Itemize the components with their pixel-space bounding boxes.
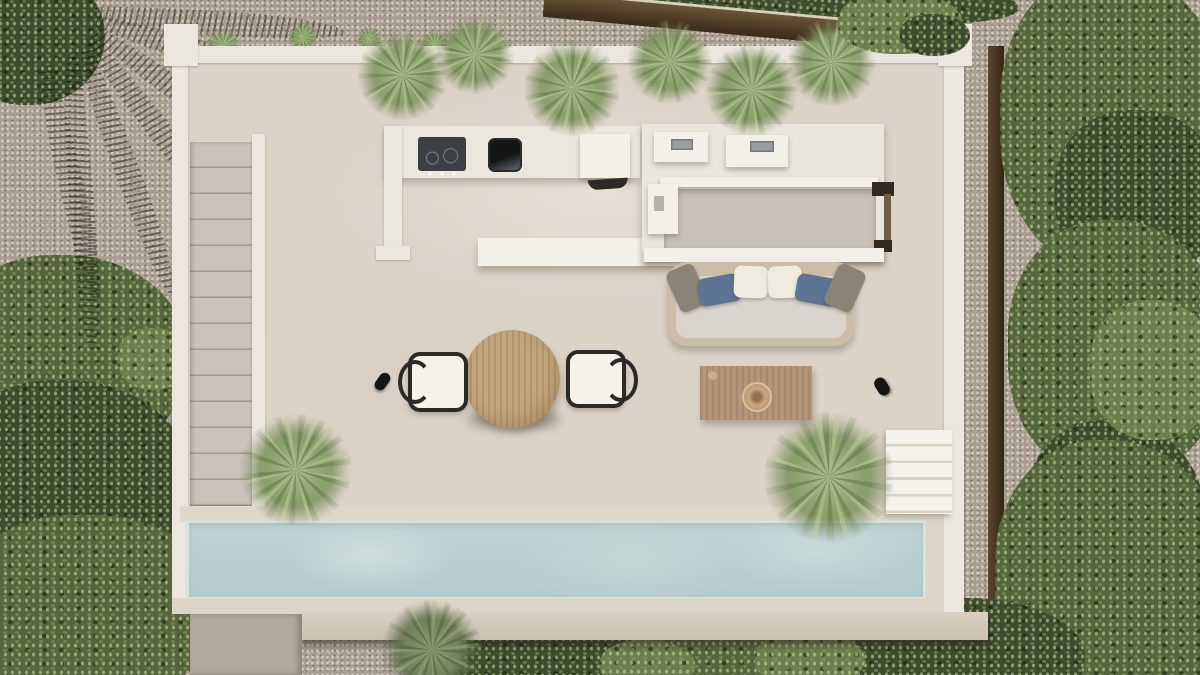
decor-dot (708, 371, 717, 380)
chair-left-armrest (398, 360, 432, 404)
roof-vent-1 (671, 139, 693, 150)
overhang-leaves-top-2 (900, 14, 970, 56)
lightwell-courtyard (664, 189, 876, 249)
sofa-pillow-white-left (733, 265, 768, 298)
white-steps (886, 430, 952, 514)
dark-side-rail (884, 194, 891, 242)
kitchen-sink (488, 138, 522, 172)
kitchen-counter-left (384, 126, 402, 254)
concrete-pad (190, 614, 302, 675)
kitchen-counter-endcap (376, 246, 410, 260)
lightwell-header-beam (660, 177, 878, 187)
cooktop (418, 137, 466, 171)
decor-bowl (742, 382, 772, 412)
corner-pillar-left (164, 24, 198, 66)
cabinet-panel (654, 196, 664, 211)
chair-right-armrest (604, 358, 638, 402)
wall-right (944, 46, 964, 612)
round-dining-table (464, 330, 560, 428)
structure-bottom-band (644, 248, 884, 262)
aerial-villa-scene (0, 0, 1200, 675)
planter-pine-1 (358, 30, 448, 120)
white-appliance (580, 134, 630, 178)
cooktop-knobs (424, 172, 460, 176)
hedge-right-6 (1090, 300, 1200, 440)
roof-vent-2 (750, 141, 774, 152)
